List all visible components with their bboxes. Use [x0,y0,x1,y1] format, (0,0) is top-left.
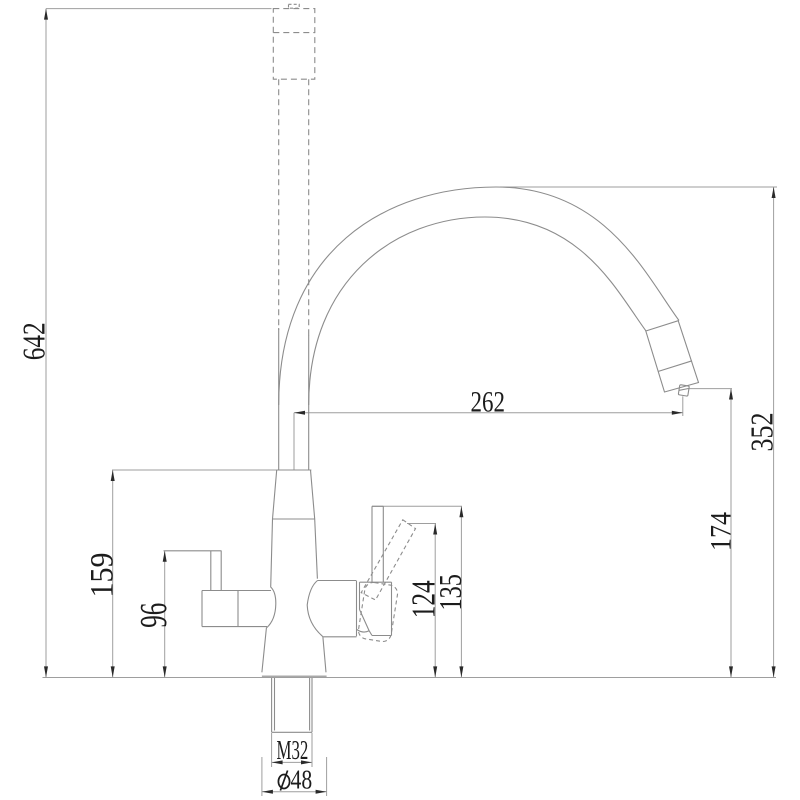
svg-text:M32: M32 [277,734,309,765]
svg-text:642: 642 [16,322,52,360]
svg-text:48: 48 [291,764,313,794]
svg-text:352: 352 [744,413,780,452]
svg-text:135: 135 [432,574,468,611]
svg-text:159: 159 [84,553,120,598]
svg-text:262: 262 [470,386,505,419]
svg-text:96: 96 [133,603,175,628]
svg-text:174: 174 [705,512,738,551]
